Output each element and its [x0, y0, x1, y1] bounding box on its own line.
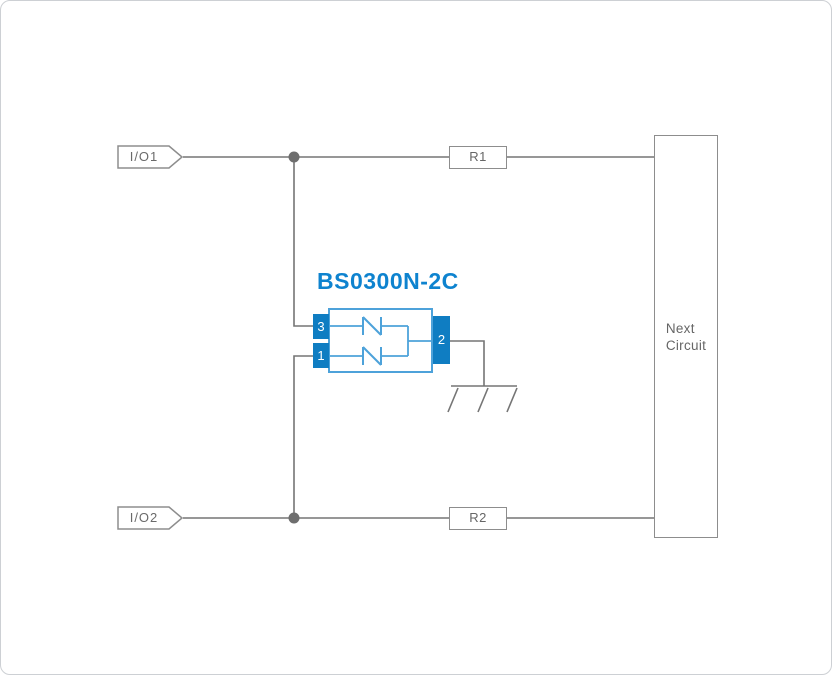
wire-junction-to-pin1 — [294, 356, 313, 518]
next-circuit-label: Next Circuit — [666, 320, 706, 354]
schematic-canvas: I/O1 I/O2 R1 R2 Next Circuit BS0300N-2C … — [0, 0, 832, 675]
io2-tag-label: I/O2 — [118, 507, 170, 529]
ground-icon — [448, 386, 517, 412]
component-pin-3: 3 — [313, 314, 329, 339]
component-pin-2: 2 — [433, 316, 450, 364]
component-body-outline — [328, 308, 433, 373]
component-pin-1: 1 — [313, 343, 329, 368]
junction-dot-bottom — [289, 513, 300, 524]
resistor-r1: R1 — [449, 146, 507, 169]
ground-hatch-1 — [448, 388, 458, 412]
ground-hatch-3 — [507, 388, 517, 412]
ground-hatch-2 — [478, 388, 488, 412]
part-number-title: BS0300N-2C — [317, 268, 459, 295]
junction-dot-top — [289, 152, 300, 163]
next-circuit-block: Next Circuit — [654, 135, 718, 538]
next-circuit-label-line1: Next — [666, 320, 706, 337]
wire-junction-to-pin3 — [294, 157, 313, 326]
wire-pin2-to-ground — [450, 341, 484, 386]
next-circuit-label-line2: Circuit — [666, 337, 706, 354]
io1-tag-label: I/O1 — [118, 146, 170, 168]
resistor-r2: R2 — [449, 507, 507, 530]
